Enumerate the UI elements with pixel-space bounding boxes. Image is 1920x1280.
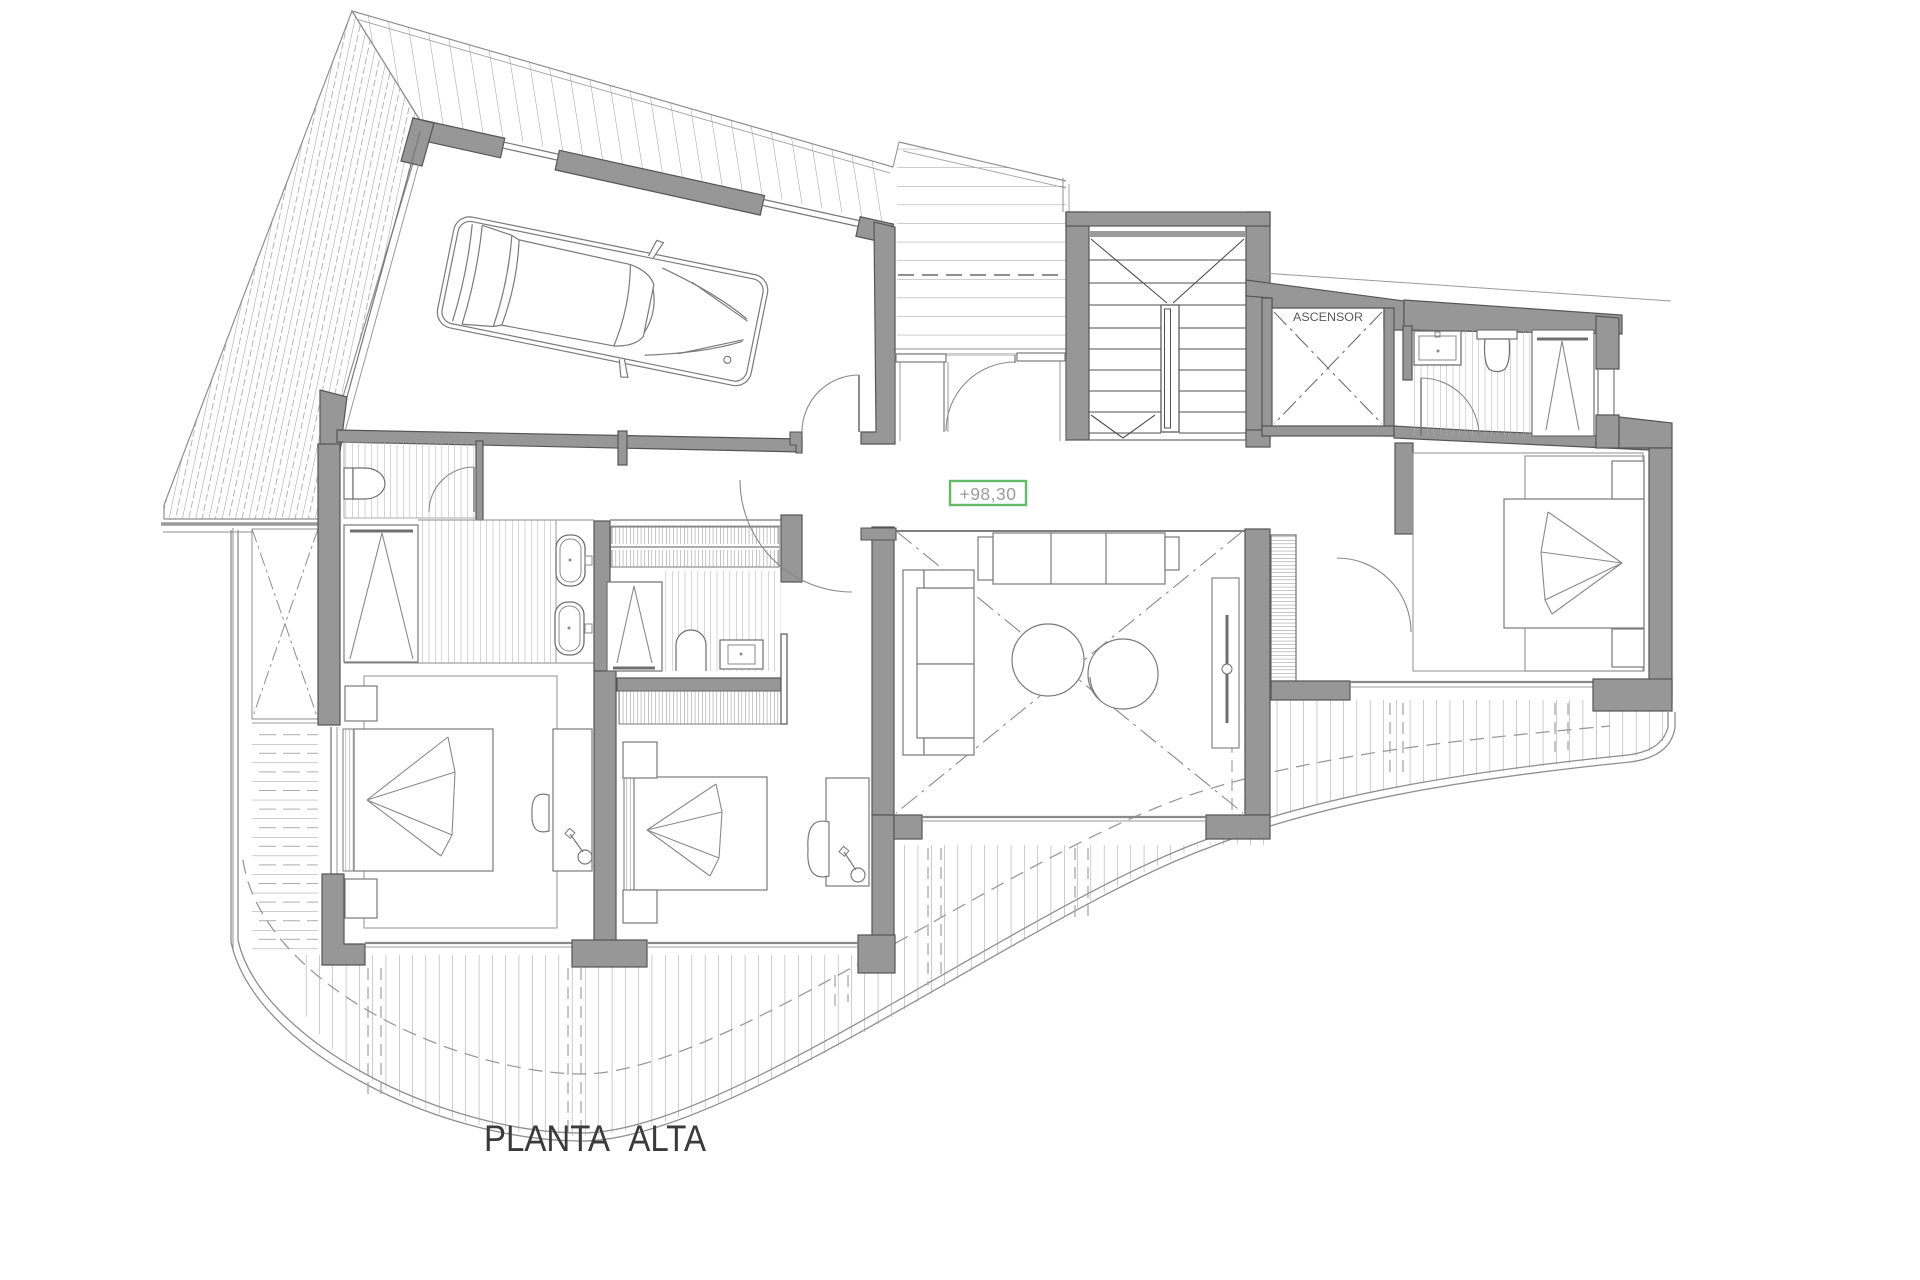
svg-text:ASCENSOR: ASCENSOR <box>1293 310 1363 324</box>
svg-text:PLANTA ALTA: PLANTA ALTA <box>484 1118 706 1159</box>
svg-text:+98,30: +98,30 <box>959 484 1016 504</box>
